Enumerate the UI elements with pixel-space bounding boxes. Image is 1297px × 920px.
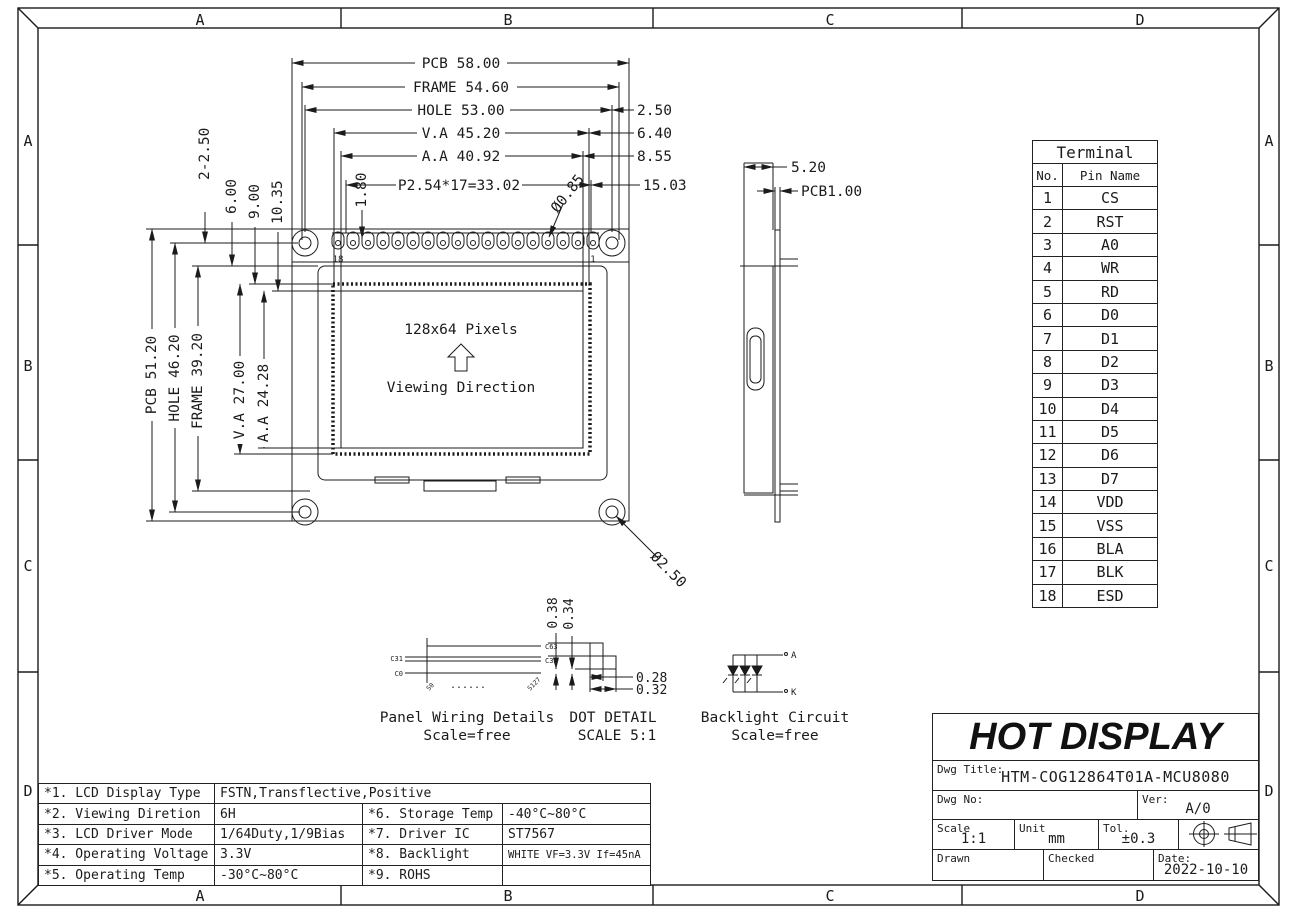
ver-value: A/0 [1138, 801, 1258, 817]
dim-pin-hole: Ø0.85 [548, 172, 587, 216]
checked-cell: Checked [1044, 850, 1154, 880]
spec-label: *3. LCD Driver Mode [39, 825, 215, 844]
dim-side-width: 5.20 [791, 160, 826, 176]
cathode-label: K [791, 688, 797, 698]
pin-name: D7 [1063, 468, 1157, 490]
panel-wiring-detail [405, 638, 541, 683]
pin-no: 4 [1033, 257, 1063, 279]
terminal-row: 14VDD [1033, 491, 1157, 514]
dim-pin-pitch: P2.54*17=33.02 [398, 178, 520, 194]
pin-no: 1 [1033, 187, 1063, 209]
pin-no: 14 [1033, 491, 1063, 513]
pin-no: 15 [1033, 514, 1063, 536]
dim-dot-h1: 0.38 [546, 597, 561, 628]
terminal-row: 8D2 [1033, 351, 1157, 374]
terminal-row: 3A0 [1033, 234, 1157, 257]
zone-bottom-a: A [195, 887, 204, 905]
label-s0: S0 [425, 681, 436, 692]
terminal-row: 18ESD [1033, 585, 1157, 607]
pin-name: D0 [1063, 304, 1157, 326]
pin-no: 12 [1033, 444, 1063, 466]
spec-label: *9. ROHS [363, 866, 503, 885]
backlight-terminals: A K [791, 651, 797, 698]
dim-va-width: V.A 45.20 [422, 126, 501, 142]
tol-cell: Tol. ±0.3 [1099, 820, 1179, 849]
panel-wiring-scale: Scale=free [423, 728, 510, 744]
zone-right-c: C [1264, 557, 1273, 575]
dim-aa-width: A.A 40.92 [422, 149, 501, 165]
dim-pin-width: 1.80 [354, 173, 370, 208]
dim-top-to-aa: 10.35 [270, 180, 286, 224]
viewing-direction-arrow-icon [448, 344, 474, 371]
dim-aa-offset: 8.55 [637, 149, 672, 165]
dwg-title-row: Dwg Title: HTM-COG12864T01A-MCU8080 [933, 761, 1258, 791]
terminal-table-title: Terminal [1033, 141, 1157, 164]
backlight-circuit [723, 653, 788, 693]
backlight-scale: Scale=free [731, 728, 818, 744]
spec-row-5: *5. Operating Temp -30°C~80°C *9. ROHS [39, 866, 650, 885]
spec-value: -40°C~80°C [503, 804, 648, 823]
drawn-label: Drawn [937, 852, 970, 865]
dim-pcb-height: PCB 51.20 [144, 336, 160, 415]
terminal-row: 6D0 [1033, 304, 1157, 327]
spec-value: WHITE VF=3.3V If=45nA [503, 845, 648, 864]
date-value: 2022-10-10 [1154, 862, 1258, 878]
side-view-dim-text: 5.20 PCB1.00 [791, 160, 862, 200]
scale-cell: Scale 1:1 [933, 820, 1015, 849]
pin-name: RST [1063, 210, 1157, 232]
dim-hole-offset: 2.50 [637, 103, 672, 119]
zone-top-d: D [1135, 11, 1144, 29]
active-area [341, 291, 583, 448]
pin-name: BLK [1063, 561, 1157, 583]
zone-top-b: B [503, 11, 512, 29]
pin-name: D1 [1063, 327, 1157, 349]
pin-name: RD [1063, 281, 1157, 303]
backlight-caption: Backlight Circuit [701, 710, 849, 726]
terminal-row: 2RST [1033, 210, 1157, 233]
checked-label: Checked [1048, 852, 1094, 865]
dim-va-offset: 6.40 [637, 126, 672, 142]
panel-wiring-caption: Panel Wiring Details [380, 710, 555, 726]
dim-mount-hole: Ø2.50 [647, 549, 689, 591]
zone-right-b: B [1264, 357, 1273, 375]
company-logo: HOT DISPLAY [933, 714, 1258, 761]
terminal-row: 13D7 [1033, 468, 1157, 491]
terminal-row: 1CS [1033, 187, 1157, 210]
dim-hole-width: HOLE 53.00 [417, 103, 504, 119]
pin-no: 10 [1033, 398, 1063, 420]
col-no-header: No. [1033, 164, 1063, 186]
dwg-title-value: HTM-COG12864T01A-MCU8080 [973, 768, 1258, 786]
ver-cell: Ver: A/0 [1138, 791, 1258, 819]
terminal-table-header: No. Pin Name [1033, 164, 1157, 187]
pin-name: VDD [1063, 491, 1157, 513]
side-view [740, 163, 798, 522]
spec-label: *7. Driver IC [363, 825, 503, 844]
terminal-row: 12D6 [1033, 444, 1157, 467]
terminal-row: 7D1 [1033, 327, 1157, 350]
tol-value: ±0.3 [1099, 831, 1178, 847]
panel-wiring-labels: C63 C32 C31 C0 S0 S127 ...... [390, 643, 557, 692]
pin-name: D6 [1063, 444, 1157, 466]
pin-no: 5 [1033, 281, 1063, 303]
spec-value: 3.3V [215, 845, 363, 864]
dim-dot-w2: 0.32 [636, 683, 667, 698]
pin-no: 8 [1033, 351, 1063, 373]
spec-label: *4. Operating Voltage [39, 845, 215, 864]
terminal-row: 9D3 [1033, 374, 1157, 397]
terminal-row: 11D5 [1033, 421, 1157, 444]
unit-value: mm [1015, 831, 1098, 847]
zone-top-a: A [195, 11, 204, 29]
front-view-labels: 18 1 128x64 Pixels Viewing Direction [333, 255, 596, 396]
terminal-row: 10D4 [1033, 398, 1157, 421]
spec-value: 6H [215, 804, 363, 823]
zone-top-c: C [825, 11, 834, 29]
terminal-row: 16BLA [1033, 538, 1157, 561]
dim-pcb-width: PCB 58.00 [422, 56, 501, 72]
pin-no: 3 [1033, 234, 1063, 256]
dot-detail-scale: SCALE 5:1 [578, 728, 657, 744]
zone-bottom-b: B [503, 887, 512, 905]
spec-row-4: *4. Operating Voltage 3.3V *8. Backlight… [39, 845, 650, 865]
dim-pcb-thickness: PCB1.00 [801, 184, 862, 200]
dim-aa-height: A.A 24.28 [256, 364, 272, 443]
dwg-no-cell: Dwg No: [933, 791, 1138, 819]
dim-va-height: V.A 27.00 [232, 361, 248, 440]
spec-value: 1/64Duty,1/9Bias [215, 825, 363, 844]
dim-hole-height: HOLE 46.20 [167, 334, 183, 421]
scale-value: 1:1 [933, 831, 1014, 847]
drawn-cell: Drawn [933, 850, 1044, 880]
pin-no: 17 [1033, 561, 1063, 583]
zone-left-d: D [23, 782, 32, 800]
date-cell: Date: 2022-10-10 [1154, 850, 1258, 880]
viewing-direction-label: Viewing Direction [387, 380, 535, 396]
display-resolution: 128x64 Pixels [404, 322, 518, 338]
zone-left-a: A [23, 132, 32, 150]
wiring-dots: ...... [450, 680, 486, 691]
dim-dot-h2: 0.34 [562, 598, 577, 629]
terminal-row: 4WR [1033, 257, 1157, 280]
pin-name: ESD [1063, 585, 1157, 607]
pin-name: WR [1063, 257, 1157, 279]
pin-no: 7 [1033, 327, 1063, 349]
pin-no: 11 [1033, 421, 1063, 443]
terminal-table: Terminal No. Pin Name 1CS 2RST 3A0 4WR 5… [1032, 140, 1158, 608]
spec-label: *1. LCD Display Type [39, 784, 215, 803]
spec-row-2: *2. Viewing Diretion 6H *6. Storage Temp… [39, 804, 650, 824]
pin-name: BLA [1063, 538, 1157, 560]
dwg-no-label: Dwg No: [937, 793, 983, 806]
pin1-label: 1 [590, 255, 595, 265]
pin-no: 18 [1033, 585, 1063, 607]
label-s127: S127 [526, 676, 543, 693]
anode-label: A [791, 651, 797, 661]
dim-frame-width: FRAME 54.60 [413, 80, 509, 96]
zone-left-c: C [23, 557, 32, 575]
pin-name: D2 [1063, 351, 1157, 373]
spec-value: FSTN,Transflective,Positive [215, 784, 650, 803]
spec-row-3: *3. LCD Driver Mode 1/64Duty,1/9Bias *7.… [39, 825, 650, 845]
spec-value: -30°C~80°C [215, 866, 363, 885]
dim-pitch-offset: 15.03 [643, 178, 687, 194]
zone-bottom-d: D [1135, 887, 1144, 905]
pin-no: 6 [1033, 304, 1063, 326]
dim-corner-holes: 2-2.50 [197, 128, 213, 180]
dot-detail-dim-text: 0.38 0.34 0.28 0.32 [546, 597, 667, 698]
spec-label: *2. Viewing Diretion [39, 804, 215, 823]
spec-label: *8. Backlight [363, 845, 503, 864]
col-pin-name-header: Pin Name [1063, 164, 1157, 186]
spec-label: *6. Storage Temp [363, 804, 503, 823]
dim-frame-height: FRAME 39.20 [190, 333, 206, 429]
dot-detail-caption: DOT DETAIL [569, 710, 657, 726]
spec-value: ST7567 [503, 825, 648, 844]
pin-no: 2 [1033, 210, 1063, 232]
viewing-area [333, 284, 590, 454]
third-angle-projection-icon [1179, 820, 1260, 849]
zone-left-b: B [23, 357, 32, 375]
scale-row: Scale 1:1 Unit mm Tol. ±0.3 [933, 820, 1258, 850]
zone-right-d: D [1264, 782, 1273, 800]
pin-name: D5 [1063, 421, 1157, 443]
pin-name: D4 [1063, 398, 1157, 420]
dim-top-to-frame: 6.00 [224, 179, 240, 214]
spec-value [503, 866, 648, 885]
pin-no: 9 [1033, 374, 1063, 396]
pin-no: 16 [1033, 538, 1063, 560]
spec-table: *1. LCD Display Type FSTN,Transflective,… [38, 783, 651, 886]
zone-right-a: A [1264, 132, 1273, 150]
terminal-row: 5RD [1033, 281, 1157, 304]
pin-name: CS [1063, 187, 1157, 209]
pin-no: 13 [1033, 468, 1063, 490]
unit-cell: Unit mm [1015, 820, 1099, 849]
terminal-row: 17BLK [1033, 561, 1157, 584]
label-c0: C0 [395, 670, 403, 678]
detail-captions: Panel Wiring Details Scale=free DOT DETA… [380, 710, 850, 744]
label-c31: C31 [390, 655, 403, 663]
dwg-no-row: Dwg No: Ver: A/0 [933, 791, 1258, 820]
signature-row: Drawn Checked Date: 2022-10-10 [933, 850, 1258, 880]
projection-symbol-cell [1179, 820, 1260, 849]
pin-name: VSS [1063, 514, 1157, 536]
pin-name: A0 [1063, 234, 1157, 256]
spec-label: *5. Operating Temp [39, 866, 215, 885]
dim-top-to-va: 9.00 [247, 184, 263, 219]
front-view [292, 229, 629, 525]
pin-name: D3 [1063, 374, 1157, 396]
terminal-row: 15VSS [1033, 514, 1157, 537]
zone-bottom-c: C [825, 887, 834, 905]
dot-detail [548, 633, 633, 692]
title-block: HOT DISPLAY Dwg Title: HTM-COG12864T01A-… [932, 713, 1259, 881]
spec-row-1: *1. LCD Display Type FSTN,Transflective,… [39, 784, 650, 804]
